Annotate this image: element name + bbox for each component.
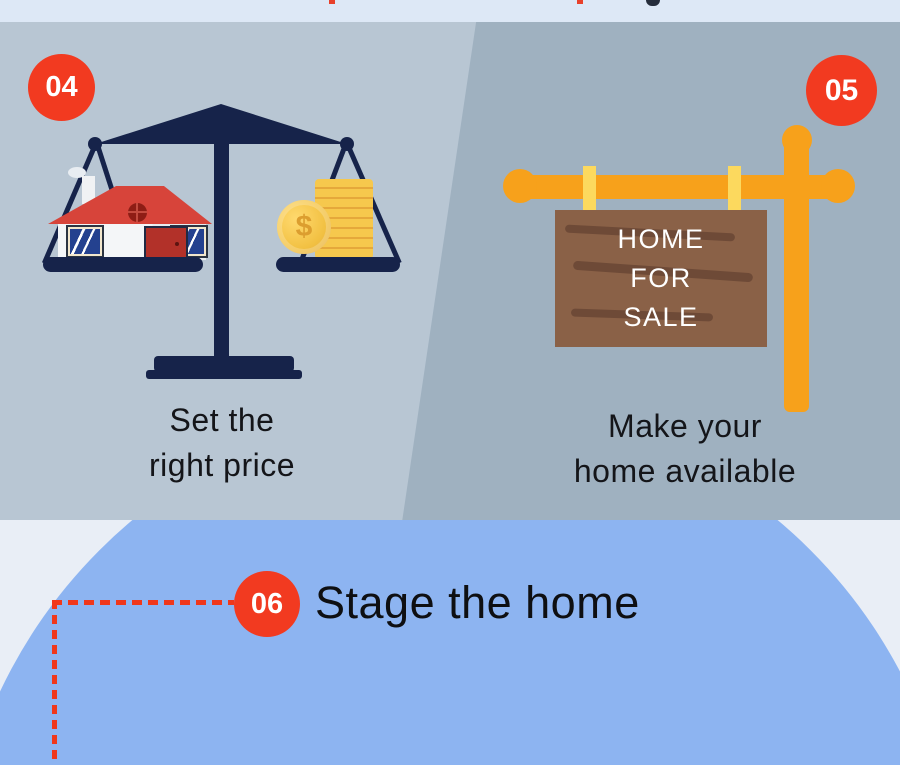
step4-label-line1: Set the: [72, 398, 372, 443]
scale-beam-knob: [340, 137, 354, 151]
sign-line3: SALE: [555, 298, 767, 337]
dashed-connector-vertical: [52, 600, 57, 765]
step4-label: Set the right price: [72, 398, 372, 488]
step5-label-line1: Make your: [525, 404, 845, 449]
top-strip: [0, 0, 900, 22]
sign-line1: HOME: [555, 220, 767, 259]
sign-line2: FOR: [555, 259, 767, 298]
sign-text: HOME FOR SALE: [555, 220, 767, 337]
infographic-canvas: 04 $ Set the right price 05: [0, 0, 900, 765]
sign-strap: [728, 166, 741, 214]
crossbar-knob: [821, 169, 855, 203]
sign-crossbar: [508, 175, 848, 199]
scale-base: [146, 370, 302, 379]
dollar-coin-icon: $: [277, 200, 331, 254]
text-remnant: [646, 0, 660, 6]
scale-post: [214, 140, 229, 362]
dollar-symbol: $: [296, 210, 313, 244]
scale-right-pan: [276, 257, 400, 272]
step5-label-line2: home available: [525, 449, 845, 494]
house-window: [68, 227, 102, 256]
step4-label-line2: right price: [72, 443, 372, 488]
crossbar-knob: [503, 169, 537, 203]
step6-number-badge: 06: [234, 571, 300, 637]
scale-beam-knob: [88, 137, 102, 151]
step5-number-badge: 05: [806, 55, 877, 126]
text-remnant: [329, 0, 335, 4]
sign-strap: [583, 166, 596, 214]
scale-left-pan: [43, 257, 203, 272]
step4-number-badge: 04: [28, 54, 95, 121]
step5-number: 05: [825, 74, 858, 108]
step6-number: 06: [251, 588, 283, 621]
step6-title: Stage the home: [315, 577, 640, 629]
step4-number: 04: [45, 71, 77, 104]
sign-board: HOME FOR SALE: [555, 210, 767, 347]
step5-label: Make your home available: [525, 404, 845, 494]
dashed-connector-horizontal: [52, 600, 234, 605]
roof-vent-window: [128, 203, 147, 222]
text-remnant: [577, 0, 583, 4]
